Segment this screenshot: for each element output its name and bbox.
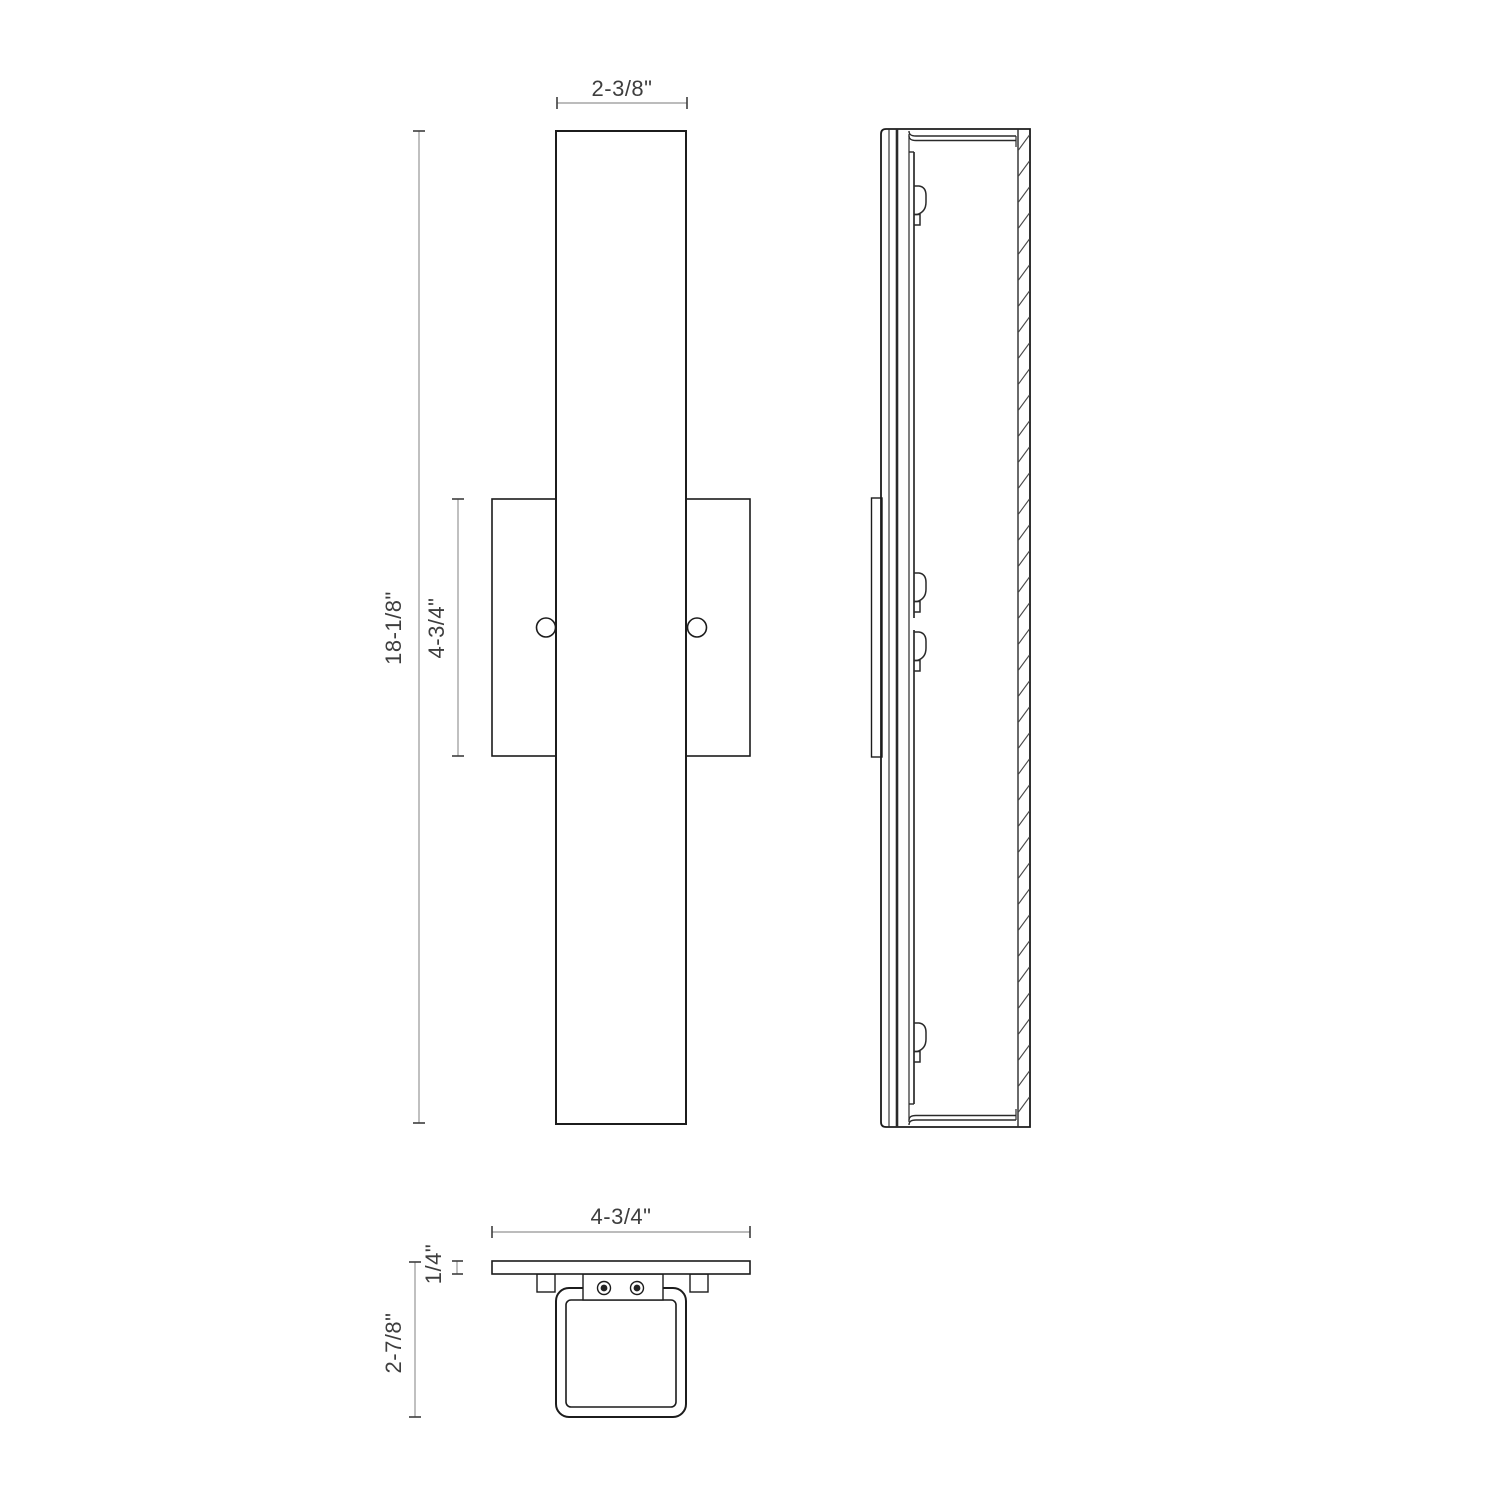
dimension-drawing-page: 2-3/8" 18-1/8" 4-3/4" [0, 0, 1500, 1500]
retaining-clip-upper-mid [914, 573, 926, 612]
bottom-wall-plate [492, 1261, 750, 1274]
depth-dim-label: 2-7/8" [381, 1313, 406, 1374]
bottom-ring-outer [556, 1288, 686, 1417]
bottom-clip-left [537, 1274, 555, 1292]
side-view [872, 129, 1031, 1127]
front-backplate-dimension: 4-3/4" [424, 499, 464, 756]
bottom-width-dim-label: 4-3/4" [591, 1204, 652, 1229]
mounting-screw-left [537, 618, 556, 637]
sconce-drawing-svg: 2-3/8" 18-1/8" 4-3/4" [0, 0, 1500, 1500]
hatch-pattern [1019, 135, 1030, 1112]
front-width-dim-label: 2-3/8" [592, 76, 653, 101]
retaining-clip-bottom [914, 1023, 926, 1062]
bottom-ring-inner [566, 1300, 676, 1407]
front-width-dimension: 2-3/8" [557, 76, 687, 109]
front-view: 2-3/8" 18-1/8" 4-3/4" [381, 76, 750, 1124]
set-screw-right [631, 1282, 644, 1295]
side-top-channel [909, 131, 1016, 147]
bottom-clip-right [690, 1274, 708, 1292]
plate-thickness-dimension: 1/4" [421, 1244, 463, 1284]
plate-thickness-dim-label: 1/4" [421, 1244, 446, 1284]
front-height-dim-label: 18-1/8" [381, 591, 406, 665]
retaining-clip-lower-mid [914, 632, 926, 671]
bottom-view: 4-3/4" 1/4" 2-7/8" [381, 1204, 750, 1417]
front-height-dimension: 18-1/8" [381, 131, 425, 1123]
side-bottom-channel [909, 1109, 1016, 1125]
bottom-width-dimension: 4-3/4" [492, 1204, 750, 1238]
side-clip-rail [909, 152, 914, 1104]
front-light-bar [556, 131, 686, 1124]
front-backplate-dim-label: 4-3/4" [424, 598, 449, 659]
mounting-screw-right [688, 618, 707, 637]
depth-dimension: 2-7/8" [381, 1262, 421, 1417]
set-screw-left [598, 1282, 611, 1295]
retaining-clip-top [914, 186, 926, 225]
side-body-outline [881, 129, 1030, 1127]
bottom-bracket [583, 1274, 663, 1300]
